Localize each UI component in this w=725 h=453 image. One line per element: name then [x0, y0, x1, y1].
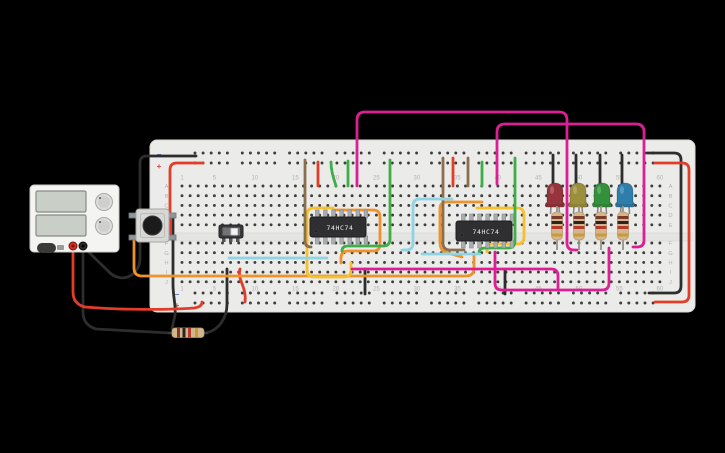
- rail-polarity-marker: −: [175, 290, 180, 299]
- breadboard-hole: [496, 251, 499, 254]
- rail-hole: [321, 152, 324, 155]
- breadboard-hole: [286, 280, 289, 283]
- row-letter-right: G: [668, 251, 673, 257]
- resistor-band: [177, 328, 180, 338]
- column-number-bottom: 20: [333, 287, 340, 293]
- breadboard-hole: [407, 214, 410, 217]
- breadboard-hole: [334, 271, 337, 274]
- breadboard-hole: [205, 242, 208, 245]
- breadboard-hole: [326, 280, 329, 283]
- breadboard-hole: [618, 242, 621, 245]
- breadboard-hole: [359, 204, 362, 207]
- breadboard-hole: [375, 194, 378, 197]
- slide-switch[interactable]: [219, 225, 243, 242]
- breadboard-hole: [181, 223, 184, 226]
- breadboard-hole: [189, 280, 192, 283]
- breadboard-hole: [181, 185, 184, 188]
- rail-hole: [580, 162, 583, 165]
- breadboard-hole: [407, 242, 410, 245]
- rail-hole: [321, 302, 324, 305]
- breadboard-hole: [448, 214, 451, 217]
- breadboard-hole: [253, 261, 256, 264]
- breadboard-hole: [650, 280, 653, 283]
- column-number-top: 35: [454, 176, 461, 182]
- switch-knob[interactable]: [231, 229, 238, 236]
- breadboard-hole: [569, 271, 572, 274]
- breadboard-hole: [488, 251, 491, 254]
- breadboard-hole: [181, 242, 184, 245]
- breadboard-hole: [270, 214, 273, 217]
- breadboard-hole: [270, 185, 273, 188]
- breadboard-hole: [286, 194, 289, 197]
- breadboard-hole: [569, 251, 572, 254]
- breadboard-hole: [464, 204, 467, 207]
- rail-hole: [477, 152, 480, 155]
- row-letter-left: B: [165, 194, 169, 200]
- breadboard-hole: [415, 204, 418, 207]
- breadboard-hole: [456, 271, 459, 274]
- breadboard-hole: [383, 214, 386, 217]
- resistor-band: [574, 216, 585, 219]
- rail-hole: [454, 302, 457, 305]
- breadboard-hole: [448, 271, 451, 274]
- breadboard-hole: [480, 194, 483, 197]
- breadboard-hole: [278, 251, 281, 254]
- rail-hole: [462, 162, 465, 165]
- breadboard-hole: [553, 242, 556, 245]
- breadboard-hole: [456, 280, 459, 283]
- breadboard-hole: [658, 271, 661, 274]
- breadboard-hole: [513, 271, 516, 274]
- breadboard-hole: [424, 194, 427, 197]
- breadboard-hole: [383, 204, 386, 207]
- rail-hole: [312, 302, 315, 305]
- led-dome[interactable]: [617, 183, 633, 205]
- rail-hole: [525, 152, 528, 155]
- breadboard-hole: [432, 194, 435, 197]
- breadboard-hole: [658, 223, 661, 226]
- rail-hole: [446, 152, 449, 155]
- row-letter-left: G: [164, 251, 169, 257]
- rail-hole: [446, 302, 449, 305]
- breadboard-hole: [496, 261, 499, 264]
- breadboard-hole: [537, 271, 540, 274]
- breadboard-hole: [440, 280, 443, 283]
- breadboard-hole: [432, 223, 435, 226]
- breadboard-hole: [586, 185, 589, 188]
- breadboard-hole: [586, 261, 589, 264]
- breadboard-hole: [221, 251, 224, 254]
- breadboard-hole: [343, 194, 346, 197]
- breadboard-hole: [464, 261, 467, 264]
- breadboard-hole: [310, 194, 313, 197]
- breadboard-hole: [221, 280, 224, 283]
- breadboard-hole: [383, 194, 386, 197]
- breadboard-hole: [626, 261, 629, 264]
- breadboard-hole: [569, 223, 572, 226]
- psu-power-toggle[interactable]: [37, 243, 56, 253]
- breadboard-hole: [618, 280, 621, 283]
- rail-hole: [312, 292, 315, 295]
- row-letter-right: E: [669, 223, 673, 229]
- breadboard-hole: [488, 271, 491, 274]
- breadboard-hole: [488, 280, 491, 283]
- rail-hole: [462, 292, 465, 295]
- breadboard-hole: [602, 242, 605, 245]
- breadboard-hole: [658, 280, 661, 283]
- breadboard-hole: [577, 280, 580, 283]
- psu-positive-terminal-hole: [72, 245, 75, 248]
- breadboard-hole: [634, 194, 637, 197]
- led-highlight: [620, 186, 624, 194]
- breadboard-hole: [407, 204, 410, 207]
- breadboard-hole: [391, 214, 394, 217]
- resistor-band: [596, 216, 607, 219]
- breadboard-hole: [383, 251, 386, 254]
- rail-hole: [352, 162, 355, 165]
- breadboard-hole: [569, 242, 572, 245]
- breadboard-hole: [529, 251, 532, 254]
- rail-hole: [415, 162, 418, 165]
- breadboard-hole: [569, 214, 572, 217]
- breadboard-hole: [286, 223, 289, 226]
- rail-hole: [557, 292, 560, 295]
- breadboard-hole: [197, 280, 200, 283]
- row-letter-right: B: [669, 194, 673, 200]
- breadboard-hole: [456, 261, 459, 264]
- rail-hole: [549, 162, 552, 165]
- breadboard-hole: [618, 261, 621, 264]
- rail-hole: [407, 162, 410, 165]
- rail-hole: [438, 302, 441, 305]
- breadboard-hole: [586, 271, 589, 274]
- rail-hole: [430, 152, 433, 155]
- breadboard-hole: [197, 204, 200, 207]
- rail-hole: [525, 302, 528, 305]
- rail-hole: [312, 162, 315, 165]
- breadboard-hole: [642, 271, 645, 274]
- column-number-bottom: 55: [616, 287, 623, 293]
- psu-negative-terminal-hole: [82, 245, 85, 248]
- rail-hole: [360, 292, 363, 295]
- breadboard-hole: [318, 261, 321, 264]
- breadboard-hole: [294, 214, 297, 217]
- breadboard-hole: [440, 261, 443, 264]
- breadboard-hole: [343, 204, 346, 207]
- rail-hole: [415, 302, 418, 305]
- breadboard-hole: [650, 223, 653, 226]
- breadboard-hole: [310, 251, 313, 254]
- rail-hole: [644, 302, 647, 305]
- breadboard-hole: [294, 271, 297, 274]
- rail-hole: [462, 152, 465, 155]
- column-number-bottom: 15: [292, 287, 299, 293]
- rail-hole: [273, 292, 276, 295]
- breadboard-hole: [650, 214, 653, 217]
- breadboard-hole: [650, 271, 653, 274]
- breadboard-hole: [213, 271, 216, 274]
- breadboard-hole: [270, 280, 273, 283]
- breadboard-hole: [383, 242, 386, 245]
- breadboard-hole: [310, 271, 313, 274]
- breadboard-hole: [310, 242, 313, 245]
- breadboard-hole: [359, 271, 362, 274]
- breadboard-hole: [229, 214, 232, 217]
- breadboard-hole: [245, 194, 248, 197]
- breadboard-hole: [294, 280, 297, 283]
- breadboard-hole: [505, 251, 508, 254]
- rail-hole: [344, 152, 347, 155]
- breadboard-hole: [294, 223, 297, 226]
- breadboard-hole: [367, 185, 370, 188]
- rail-hole: [249, 302, 252, 305]
- ic-label: 74HC74: [472, 228, 499, 236]
- resistor-pulldown[interactable]: [168, 328, 208, 338]
- rail-hole: [344, 302, 347, 305]
- column-number-bottom: 30: [414, 287, 421, 293]
- rail-hole: [265, 152, 268, 155]
- resistor-band: [188, 328, 191, 338]
- rail-hole: [485, 162, 488, 165]
- rail-hole: [249, 152, 252, 155]
- rail-hole: [446, 292, 449, 295]
- rail-hole: [352, 152, 355, 155]
- breadboard-hole: [310, 214, 313, 217]
- column-number-bottom: 25: [373, 287, 380, 293]
- breadboard-hole: [545, 214, 548, 217]
- breadboard-hole: [521, 251, 524, 254]
- rail-hole: [485, 152, 488, 155]
- rail-hole: [383, 152, 386, 155]
- breadboard-hole: [278, 271, 281, 274]
- rail-hole: [368, 302, 371, 305]
- rail-hole: [572, 162, 575, 165]
- breadboard-hole: [262, 223, 265, 226]
- breadboard-hole: [537, 251, 540, 254]
- rail-hole: [454, 162, 457, 165]
- breadboard-hole: [464, 185, 467, 188]
- breadboard-hole: [480, 204, 483, 207]
- breadboard-hole: [181, 271, 184, 274]
- breadboard-hole: [634, 251, 637, 254]
- rail-hole: [210, 302, 213, 305]
- rail-hole: [635, 162, 638, 165]
- breadboard-hole: [537, 204, 540, 207]
- rail-hole: [596, 302, 599, 305]
- breadboard-hole: [464, 280, 467, 283]
- breadboard-hole: [351, 204, 354, 207]
- breadboard-hole: [448, 223, 451, 226]
- rail-hole: [502, 302, 505, 305]
- breadboard-hole: [326, 204, 329, 207]
- rail-hole: [226, 152, 229, 155]
- breadboard-hole: [181, 280, 184, 283]
- rail-hole: [635, 292, 638, 295]
- breadboard-hole: [424, 223, 427, 226]
- breadboard-hole: [189, 261, 192, 264]
- rail-hole: [383, 302, 386, 305]
- breadboard-hole: [618, 271, 621, 274]
- breadboard-hole: [464, 271, 467, 274]
- breadboard-hole: [245, 242, 248, 245]
- breadboard-hole: [391, 261, 394, 264]
- rail-hole: [202, 292, 205, 295]
- breadboard-hole: [521, 271, 524, 274]
- led-highlight: [573, 186, 577, 194]
- resistor-band: [574, 234, 585, 237]
- rail-hole: [430, 302, 433, 305]
- breadboard-hole: [658, 261, 661, 264]
- rail-hole: [296, 302, 299, 305]
- rail-hole: [635, 152, 638, 155]
- breadboard-hole: [432, 271, 435, 274]
- breadboard-hole: [521, 185, 524, 188]
- breadboard-hole: [391, 242, 394, 245]
- breadboard-hole: [553, 261, 556, 264]
- rail-hole: [510, 292, 513, 295]
- circuit-svg: 1155101015152020252530303535404045455050…: [0, 0, 725, 453]
- breadboard-hole: [245, 280, 248, 283]
- rail-hole: [383, 292, 386, 295]
- resistor-band: [618, 234, 629, 237]
- breadboard-hole: [658, 185, 661, 188]
- rail-hole: [304, 292, 307, 295]
- breadboard-hole: [205, 185, 208, 188]
- breadboard-hole: [221, 261, 224, 264]
- breadboard-hole: [399, 214, 402, 217]
- breadboard-hole: [545, 271, 548, 274]
- breadboard-hole: [205, 261, 208, 264]
- breadboard-hole: [537, 185, 540, 188]
- rail-hole: [218, 292, 221, 295]
- breadboard-hole: [253, 194, 256, 197]
- breadboard-hole: [626, 242, 629, 245]
- breadboard-hole: [205, 214, 208, 217]
- breadboard-hole: [545, 280, 548, 283]
- breadboard-hole: [197, 194, 200, 197]
- breadboard-hole: [391, 185, 394, 188]
- breadboard-hole: [383, 261, 386, 264]
- rail-hole: [368, 162, 371, 165]
- led-dome[interactable]: [594, 183, 610, 205]
- breadboard-hole: [270, 204, 273, 207]
- column-number-top: 30: [414, 176, 421, 182]
- rail-hole: [288, 302, 291, 305]
- rail-hole: [368, 292, 371, 295]
- power-supply[interactable]: [30, 185, 119, 253]
- breadboard-hole: [262, 251, 265, 254]
- breadboard-hole: [294, 261, 297, 264]
- breadboard-hole: [262, 271, 265, 274]
- breadboard-hole: [480, 280, 483, 283]
- rail-hole: [477, 292, 480, 295]
- breadboard-hole: [237, 185, 240, 188]
- rail-hole: [533, 162, 536, 165]
- breadboard-hole: [488, 204, 491, 207]
- breadboard-hole: [634, 271, 637, 274]
- led-dome[interactable]: [547, 183, 563, 205]
- breadboard-hole: [432, 261, 435, 264]
- breadboard-hole: [480, 261, 483, 264]
- breadboard-hole: [286, 271, 289, 274]
- rail-hole: [604, 162, 607, 165]
- rail-hole: [604, 292, 607, 295]
- breadboard-hole: [650, 242, 653, 245]
- rail-hole: [541, 302, 544, 305]
- rail-hole: [635, 302, 638, 305]
- breadboard-hole: [245, 251, 248, 254]
- breadboard-hole: [189, 271, 192, 274]
- breadboard-hole: [310, 280, 313, 283]
- breadboard-hole: [529, 242, 532, 245]
- breadboard-hole: [253, 204, 256, 207]
- rail-hole: [257, 162, 260, 165]
- breadboard-hole: [569, 280, 572, 283]
- breadboard-hole: [407, 251, 410, 254]
- breadboard-hole: [513, 280, 516, 283]
- rail-hole: [218, 152, 221, 155]
- breadboard-hole: [205, 280, 208, 283]
- breadboard-hole: [229, 261, 232, 264]
- breadboard-hole: [229, 271, 232, 274]
- breadboard-hole: [658, 204, 661, 207]
- breadboard-hole: [294, 242, 297, 245]
- breadboard-hole: [310, 261, 313, 264]
- breadboard-hole: [545, 261, 548, 264]
- breadboard-hole: [318, 280, 321, 283]
- breadboard-hole: [189, 214, 192, 217]
- button-actuator[interactable]: [143, 216, 162, 235]
- rail-hole: [644, 292, 647, 295]
- column-number-top: 60: [657, 176, 664, 182]
- rail-hole: [430, 162, 433, 165]
- breadboard-hole: [278, 280, 281, 283]
- breadboard-hole: [537, 223, 540, 226]
- breadboard-hole: [650, 185, 653, 188]
- breadboard-hole: [181, 214, 184, 217]
- rail-hole: [525, 162, 528, 165]
- rail-hole: [477, 302, 480, 305]
- push-button[interactable]: [129, 209, 176, 242]
- breadboard-hole: [181, 251, 184, 254]
- rail-hole: [510, 302, 513, 305]
- breadboard-hole: [326, 251, 329, 254]
- rail-hole: [304, 302, 307, 305]
- breadboard-hole: [577, 271, 580, 274]
- breadboard-hole: [213, 251, 216, 254]
- breadboard-hole: [245, 223, 248, 226]
- led-dome[interactable]: [570, 183, 586, 205]
- breadboard-hole: [399, 223, 402, 226]
- breadboard-hole: [270, 194, 273, 197]
- breadboard-hole: [294, 194, 297, 197]
- ic-pin1-dot: [460, 233, 464, 237]
- breadboard-hole: [472, 280, 475, 283]
- breadboard-hole: [626, 271, 629, 274]
- psu-display-current: [36, 215, 86, 236]
- rail-hole: [399, 152, 402, 155]
- breadboard-hole: [472, 204, 475, 207]
- breadboard-hole: [407, 271, 410, 274]
- breadboard-hole: [278, 223, 281, 226]
- rail-hole: [407, 152, 410, 155]
- breadboard-hole: [213, 185, 216, 188]
- breadboard-hole: [197, 251, 200, 254]
- column-number-top: 45: [535, 176, 542, 182]
- breadboard-hole: [594, 242, 597, 245]
- breadboard-hole: [326, 271, 329, 274]
- breadboard-hole: [262, 204, 265, 207]
